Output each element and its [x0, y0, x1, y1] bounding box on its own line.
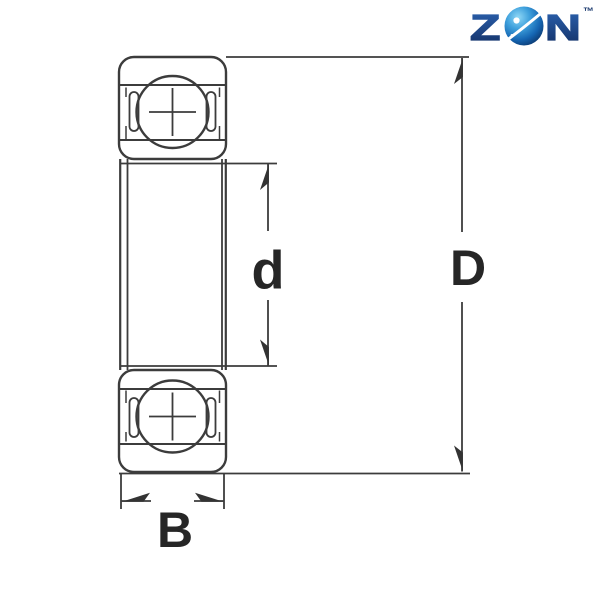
dimension-d: d — [120, 164, 285, 367]
logo-letter-n: N — [545, 8, 581, 48]
logo-letter-z: Z — [470, 8, 500, 48]
diagram-canvas: d D B Z N ™ — [0, 0, 600, 600]
globe-dot-small — [511, 34, 514, 37]
logo-globe-icon — [505, 7, 544, 46]
globe-dot-large — [513, 17, 519, 23]
logo-trademark: ™ — [583, 6, 594, 18]
dim-D-label: D — [450, 240, 486, 296]
bore-silhouette — [120, 159, 226, 370]
bearing-dimension-drawing: d D B Z N ™ — [0, 0, 600, 600]
bearing-top-section — [119, 57, 226, 159]
bearing-bottom-section — [119, 370, 226, 472]
zen-logo: Z N ™ — [470, 6, 594, 48]
bearing-cross-section — [119, 57, 226, 472]
dimension-D: D — [119, 57, 486, 474]
dim-B-label: B — [157, 502, 193, 558]
dimension-B: B — [121, 474, 224, 558]
dim-d-label: d — [252, 241, 285, 301]
